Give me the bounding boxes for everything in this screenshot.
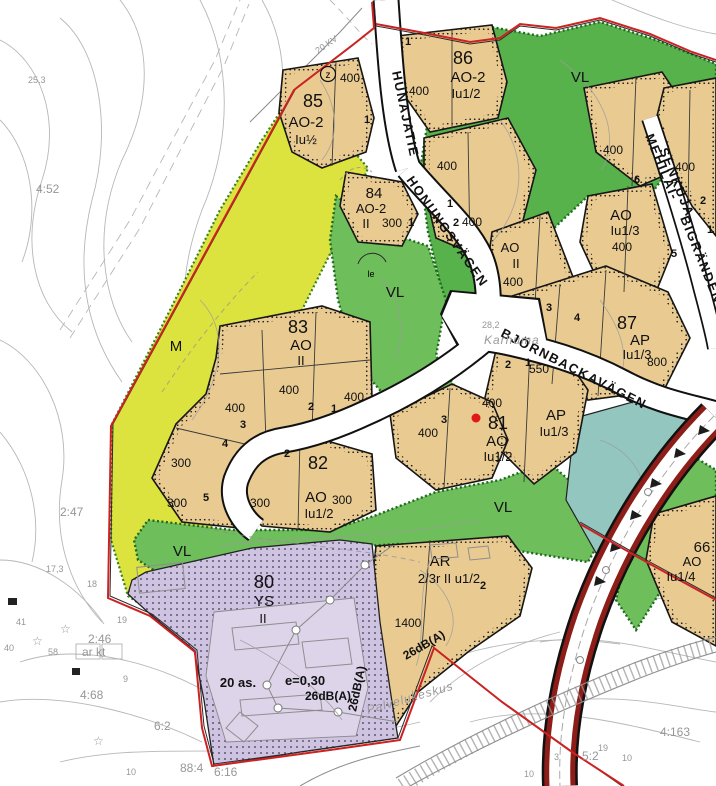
cadastral-62: 6:2 <box>154 719 171 733</box>
block-86-number: 86 <box>453 48 473 68</box>
block-84-use: AO-2 <box>356 201 386 216</box>
area-value: 400 <box>462 215 482 229</box>
block-86-use: AO-2 <box>450 69 485 86</box>
block-84-storeys: II <box>362 216 369 231</box>
block-80-use: YS <box>254 593 274 610</box>
block-80-number: 80 <box>254 572 274 592</box>
cadastral-468: 4:68 <box>80 688 104 702</box>
lot-number: 1 <box>364 114 370 126</box>
area-value: 300 <box>167 496 187 510</box>
lot-number: 4 <box>222 438 229 450</box>
block-66-eff: Iu1/4 <box>667 569 696 584</box>
num-18: 18 <box>87 579 97 589</box>
star-symbol: ☆ <box>32 634 43 648</box>
lot-number: 2 <box>308 401 314 413</box>
lot-number: 1 <box>408 217 414 229</box>
block-aoMid-use: AO <box>501 240 520 255</box>
apartments-note: 20 as. <box>220 675 256 690</box>
elevation-282: 28,2 <box>482 320 500 330</box>
block-ap2-eff: Iu1/3 <box>540 424 569 439</box>
lot-number: 3 <box>546 302 552 314</box>
zone-vl-label-2: VL <box>386 284 404 301</box>
area-value: 800 <box>647 355 667 369</box>
zone-m-label: M <box>170 338 183 355</box>
lot-number: 2 <box>284 448 290 460</box>
block-83-use: AO <box>290 337 312 354</box>
lot-number: 1 <box>331 403 337 415</box>
area-value: 300 <box>171 456 191 470</box>
block-87-number: 87 <box>617 313 637 333</box>
ys-building-parcel <box>206 598 368 742</box>
block-82-use: AO <box>305 489 327 506</box>
transformer-label: z <box>326 70 331 81</box>
noise-note-1: 26dB(A) <box>305 689 351 703</box>
elevation-173: 17,3 <box>46 564 64 574</box>
area-value: 300 <box>250 496 270 510</box>
powerline-label: 20 KV <box>313 33 339 55</box>
area-value: 400 <box>612 240 632 254</box>
le-marker: le <box>367 269 374 279</box>
block-aoE-use: AO <box>610 207 632 224</box>
block-85-use: AO-2 <box>288 114 323 131</box>
zoning-plan-map: z le 85 AO-2 Iu½ 86 AO-2 Iu1/2 84 AO-2 I… <box>0 0 716 786</box>
lot-number: 5 <box>203 492 209 504</box>
num-19b: 19 <box>598 743 608 753</box>
selected-plot-marker <box>472 414 481 423</box>
block-81-use: AO <box>486 433 508 450</box>
block-81-number: 81 <box>488 413 508 433</box>
block-ar-eff: 2/3r II u1/2 <box>418 571 480 586</box>
cadastral-52: 5:2 <box>582 749 599 763</box>
lot-number: 6 <box>634 174 640 186</box>
efficiency-note: e=0,30 <box>285 673 325 688</box>
lot-number: 2 <box>700 195 706 207</box>
zone-vl-label-1: VL <box>571 69 589 86</box>
name-karhuma: Karhuma <box>484 333 540 347</box>
lot-number: 1 <box>447 198 453 210</box>
block-84-number: 84 <box>366 185 383 202</box>
num-41: 41 <box>16 617 26 627</box>
area-value: 400 <box>279 383 299 397</box>
lot-number: 2 <box>480 580 486 592</box>
num-10b: 10 <box>622 753 632 763</box>
lot-number: 3 <box>240 419 246 431</box>
num-19: 19 <box>117 615 127 625</box>
cadastral-4163: 4:163 <box>660 725 690 739</box>
block-aoE-eff: Iu1/3 <box>611 223 640 238</box>
lot-number: 5 <box>671 248 677 260</box>
block-82-eff: Iu1/2 <box>305 506 334 521</box>
cadastral-452: 4:52 <box>36 182 60 196</box>
cadastral-247: 2:47 <box>60 505 84 519</box>
zone-vl-label-3: VL <box>494 499 512 516</box>
zone-vl-label-4: VL <box>173 543 191 560</box>
area-value: 400 <box>603 143 623 157</box>
num-10c: 10 <box>524 769 534 779</box>
block-86-eff: Iu1/2 <box>452 86 481 101</box>
block-81-eff: Iu1/2 <box>484 449 513 464</box>
zoning-map-screenshot: z le 85 AO-2 Iu½ 86 AO-2 Iu1/2 84 AO-2 I… <box>0 0 716 786</box>
area-value: 400 <box>409 84 429 98</box>
num-10: 10 <box>126 767 136 777</box>
lot-number: 1 <box>405 36 411 48</box>
star-symbol: ☆ <box>60 622 71 636</box>
cadastral-616: 6:16 <box>214 765 238 779</box>
block-85-number: 85 <box>303 91 323 111</box>
lot-number: 2 <box>505 359 511 371</box>
block-ap2-use: AP <box>546 407 566 424</box>
num-40: 40 <box>4 643 14 653</box>
block-82-number: 82 <box>308 453 328 473</box>
lot-number: 3 <box>441 414 447 426</box>
area-value: 400 <box>340 71 360 85</box>
block-ar-use: AR <box>430 553 451 570</box>
area-value: 400 <box>503 275 523 289</box>
area-value: 400 <box>482 396 502 410</box>
cadastral-884: 88:4 <box>180 761 204 775</box>
area-value: 400 <box>344 390 364 404</box>
area-value: 300 <box>382 216 402 230</box>
lot-number: 4 <box>574 312 581 324</box>
area-value: 300 <box>332 493 352 507</box>
area-value: 400 <box>225 401 245 415</box>
num-58: 58 <box>48 647 58 657</box>
elevation-253: 25,3 <box>28 75 46 85</box>
block-85-eff: Iu½ <box>295 132 317 147</box>
block-66-use: AO <box>683 554 702 569</box>
star-symbol: ☆ <box>93 734 104 748</box>
arkt-label: ar kt <box>76 644 122 659</box>
num-3: 3 <box>554 752 559 762</box>
area-value: 1400 <box>395 616 422 630</box>
area-value: 400 <box>437 159 457 173</box>
area-value: 400 <box>418 426 438 440</box>
area-value: 550 <box>529 362 549 376</box>
block-80-storeys: II <box>259 611 266 626</box>
arkt-text: ar kt <box>82 645 106 659</box>
block-83-number: 83 <box>288 317 308 337</box>
lot-number: 1 <box>707 224 713 236</box>
block-aoMid-storeys: II <box>512 256 519 271</box>
block-83-storeys: II <box>297 353 304 368</box>
num-9: 9 <box>123 674 128 684</box>
lot-number: 1 <box>525 357 531 369</box>
